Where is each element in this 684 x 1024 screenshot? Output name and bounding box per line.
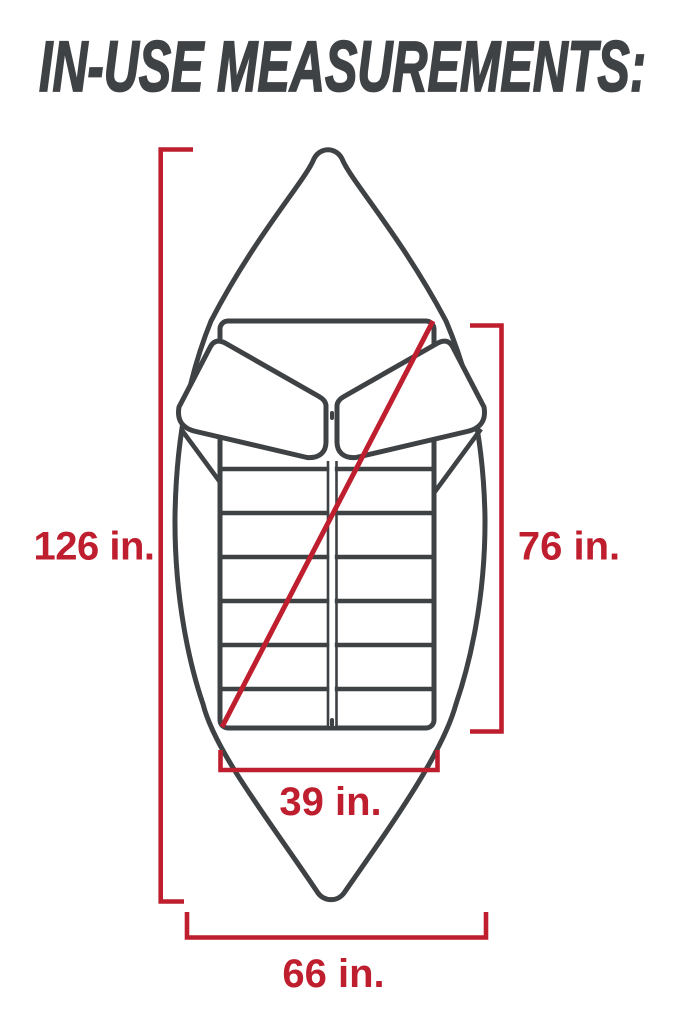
svg-text:66 in.: 66 in.	[282, 952, 384, 996]
svg-text:76 in.: 76 in.	[518, 525, 620, 569]
svg-text:39 in.: 39 in.	[279, 780, 381, 824]
svg-text:IN-USE MEASUREMENTS:: IN-USE MEASUREMENTS:	[39, 28, 646, 107]
svg-text:126 in.: 126 in.	[33, 525, 154, 569]
